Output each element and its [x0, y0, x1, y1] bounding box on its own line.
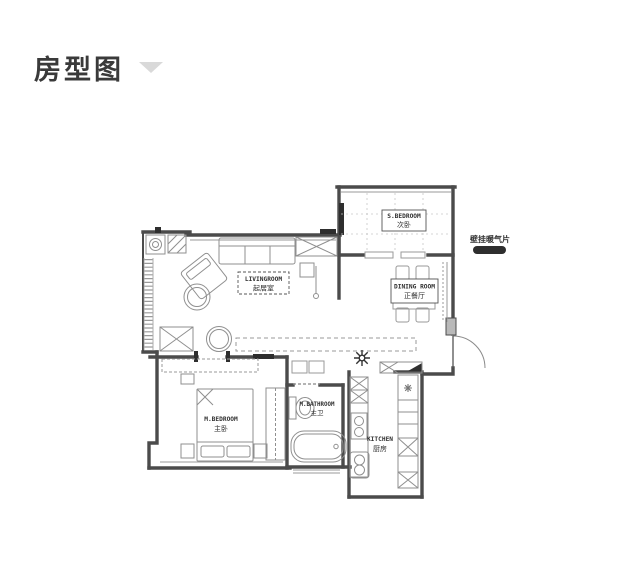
dresser: [181, 374, 194, 384]
room-label-sbedroom-zh: 次卧: [397, 220, 411, 229]
utility-cabinet: [168, 235, 186, 253]
round-stool: [207, 327, 232, 352]
entry-door: [453, 336, 485, 368]
armchair: [180, 252, 228, 300]
radiator-annotation-text: 壁挂暖气片: [470, 234, 510, 244]
fan-icon: [354, 350, 370, 366]
floor-plan-svg: S.BEDROOM 次卧 LIVINGROOM 起居室 DINING ROOM …: [0, 0, 640, 568]
room-label-sbedroom-en: S.BEDROOM: [387, 213, 421, 220]
room-label-mbathroom-zh: 主卫: [311, 408, 325, 417]
sofa: [219, 238, 295, 264]
walls: [143, 187, 455, 497]
bedroom-wardrobe: [266, 388, 285, 460]
room-label-kitchen-en: KITCHEN: [367, 436, 393, 443]
tv-cabinet: [236, 338, 416, 351]
hall-closet: [160, 327, 193, 351]
floor-plan: S.BEDROOM 次卧 LIVINGROOM 起居室 DINING ROOM …: [0, 0, 640, 568]
room-label-mbathroom-en: M.BATHROOM: [300, 402, 335, 408]
room-label-dining-zh: 正餐厅: [404, 291, 425, 300]
radiator-annotation: 壁挂暖气片: [470, 234, 510, 254]
fridge-icon: [404, 384, 412, 392]
kitchen-counter-left: [350, 377, 369, 478]
bedroom-door-jambs: [194, 351, 230, 362]
washing-machine-icon: [146, 235, 165, 254]
hall-cabinets: [292, 361, 324, 373]
room-label-dining-en: DINING ROOM: [394, 284, 435, 291]
entry-marker: [408, 363, 422, 371]
bathtub-icon: [291, 431, 346, 462]
overhead-wardrobe: [162, 359, 258, 372]
coffee-table: [184, 284, 210, 310]
side-table: [300, 263, 319, 299]
room-label-mbedroom-zh: 主卧: [214, 424, 228, 433]
room-label-mbedroom-en: M.BEDROOM: [204, 416, 238, 423]
radiator-annotation-icon: [473, 246, 506, 254]
room-label-living-en: LIVINGROOM: [245, 276, 283, 283]
room-label-kitchen-zh: 厨房: [373, 444, 387, 453]
room-label-living-zh: 起居室: [253, 284, 274, 293]
